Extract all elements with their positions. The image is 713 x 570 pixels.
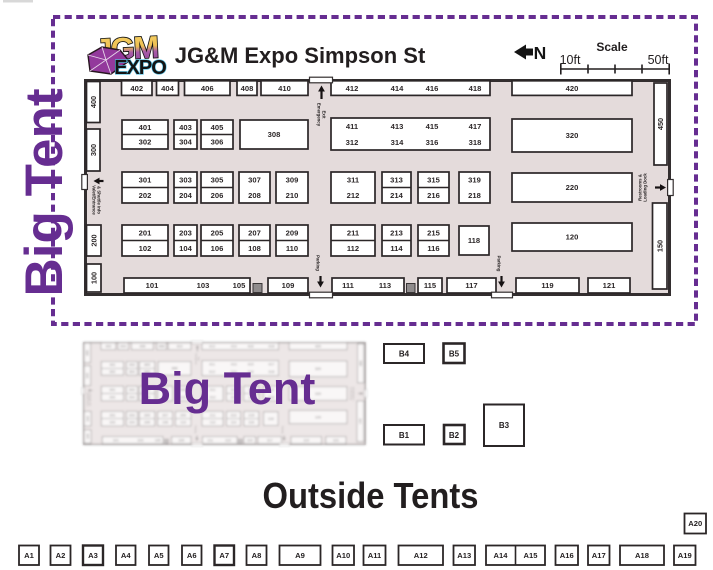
svg-text:A20: A20 xyxy=(688,519,702,528)
svg-text:Big Tent: Big Tent xyxy=(139,363,316,414)
svg-text:Big Tent: Big Tent xyxy=(15,88,74,296)
svg-text:A8: A8 xyxy=(252,551,262,560)
svg-text:A3: A3 xyxy=(88,551,98,560)
svg-text:B4: B4 xyxy=(399,350,410,359)
svg-text:EXPO: EXPO xyxy=(114,57,166,79)
svg-text:B1: B1 xyxy=(399,431,410,440)
svg-text:A7: A7 xyxy=(219,551,229,560)
svg-text:A2: A2 xyxy=(56,551,66,560)
svg-text:A13: A13 xyxy=(457,551,471,560)
svg-text:JG&M Expo Simpson St: JG&M Expo Simpson St xyxy=(175,43,426,68)
svg-text:A12: A12 xyxy=(414,551,428,560)
svg-text:B5: B5 xyxy=(449,350,460,359)
svg-text:A9: A9 xyxy=(295,551,305,560)
svg-text:A16: A16 xyxy=(560,551,574,560)
svg-text:A19: A19 xyxy=(678,551,692,560)
svg-text:A10: A10 xyxy=(336,551,350,560)
svg-text:B2: B2 xyxy=(449,431,460,440)
svg-text:A15: A15 xyxy=(524,551,539,560)
svg-text:50ft: 50ft xyxy=(648,53,669,67)
svg-text:10ft: 10ft xyxy=(560,53,581,67)
svg-text:B3: B3 xyxy=(499,421,510,430)
svg-text:A17: A17 xyxy=(592,551,606,560)
svg-text:Scale: Scale xyxy=(596,40,628,54)
svg-text:A1: A1 xyxy=(24,551,34,560)
svg-text:A4: A4 xyxy=(121,551,131,560)
svg-text:A5: A5 xyxy=(154,551,164,560)
svg-text:A18: A18 xyxy=(635,551,649,560)
svg-text:N: N xyxy=(534,43,547,63)
svg-text:Outside Tents: Outside Tents xyxy=(263,475,479,516)
svg-text:A11: A11 xyxy=(368,551,382,560)
svg-text:A14: A14 xyxy=(494,551,509,560)
svg-text:A6: A6 xyxy=(187,551,197,560)
